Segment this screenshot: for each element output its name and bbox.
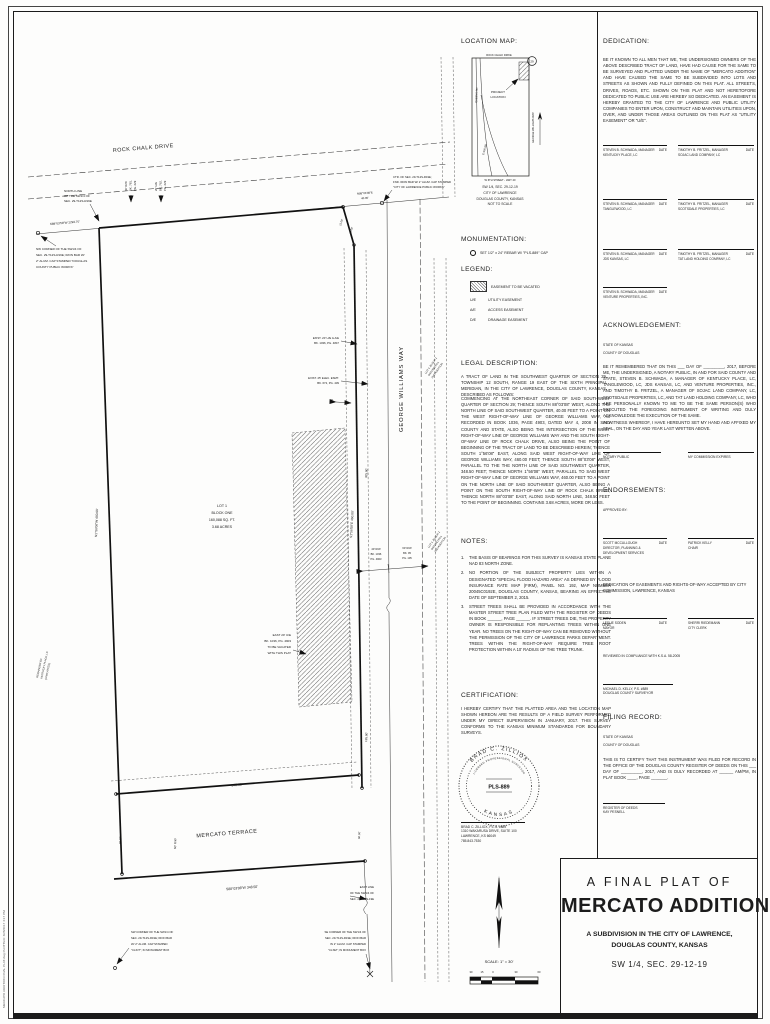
svg-text:15: 15 (481, 970, 484, 974)
rcd-ue-callout: 20' U/E BK. 762, PG. 629 (154, 180, 167, 191)
street-label-mercato-terrace: MERCATO TERRACE (196, 829, 257, 840)
endorsements-title: ENDORSEMENTS: (603, 487, 666, 494)
monumentation-title: MONUMENTATION: (461, 236, 526, 243)
locmap-project-2: LOCATION (490, 95, 505, 99)
hatch-swatch-icon (470, 281, 487, 292)
ack-state: STATE OF KANSAS (603, 343, 633, 348)
locmap-project-1: PROJECT (491, 90, 505, 94)
svg-text:TO BE VACATED: TO BE VACATED (267, 645, 291, 649)
certification-body: I HEREBY CERTIFY THAT THE PLATTED AREA A… (461, 706, 611, 737)
filing-state: STATE OF KANSAS (603, 735, 633, 740)
svg-text:BK. 1036, PG. 4903: BK. 1036, PG. 4903 (264, 639, 291, 643)
seal-state: KANSAS (483, 808, 514, 817)
svg-text:"CLINT"; IN MONUMENT BOX: "CLINT"; IN MONUMENT BOX (131, 948, 169, 952)
svg-text:COUNTY PUBLIC WORKS": COUNTY PUBLIC WORKS" (36, 265, 74, 269)
clip-dim-1: 15.00' (338, 218, 344, 226)
filing-body: THIS IS TO CERTIFY THAT THIS INSTRUMENT … (603, 757, 756, 781)
svg-text:"CITY OF LAWRENCE PUBLIC WORKS: "CITY OF LAWRENCE PUBLIC WORKS" (393, 185, 445, 189)
vacated-easement-hatch (292, 428, 352, 707)
note-item-3: 3. STREET TREES SHALL BE PROVIDED IN ACC… (461, 604, 611, 653)
svg-text:EXIST. 20' U/E & A/E: EXIST. 20' U/E & A/E (313, 336, 339, 340)
legal-description-p2: COMMENCING AT THE NORTHEAST CORNER OF SA… (461, 396, 610, 506)
legend-title: LEGEND: (461, 266, 493, 273)
svg-text:SEC. 29-T12S-19E: SEC. 29-T12S-19E (350, 897, 374, 901)
svg-text:"CLSM"; IN MONUMENT BOX: "CLSM"; IN MONUMENT BOX (328, 948, 366, 952)
seal-title: LICENSED PROFESSIONAL SURVEYOR (472, 756, 526, 775)
svg-text:SEC. 29-T12S-R19E; IRON BAR W/: SEC. 29-T12S-R19E; IRON BAR W/ (36, 253, 85, 257)
svg-text:KANSAS: KANSAS (483, 808, 514, 817)
north-line-bearing: S88°03'58"W 2293.70' (50, 219, 81, 226)
svg-text:OF THE SW1/4 OF: OF THE SW1/4 OF (64, 194, 90, 198)
signature-tat-land: TIMOTHY B. FRITZEL, MANAGERDATE TAT LAND… (678, 249, 754, 261)
signature-venture-properties: STEVEN B. SCHWADA, MANAGERDATE VENTURE P… (603, 287, 667, 299)
east-line-dimension: S1°56'08"E 460.00' (349, 510, 355, 538)
register-of-deeds-block: REGISTER OF DEEDS KAY PESNELL (603, 803, 665, 815)
svg-text:SEC. 29-T12S-R19E; IRON BAR: SEC. 29-T12S-R19E; IRON BAR (325, 936, 366, 940)
exist-elec-callout: EXIST. 25' ELEC. ESMT. BK. 672, PG. 439 (308, 376, 368, 385)
endorsement-mayor: LESLIE SODENDATE MAYOR (603, 618, 667, 630)
svg-text:0: 0 (492, 970, 494, 974)
notary-block: NOTARY PUBLIC (603, 452, 661, 459)
svg-text:WITH THIS PLAT: WITH THIS PLAT (268, 651, 292, 655)
svg-text:EAST LINE: EAST LINE (360, 885, 374, 889)
title-prefix: A FINAL PLAT OF (561, 875, 758, 889)
street-label-george-williams: GEORGE WILLIAMS WAY (399, 346, 405, 432)
rebar-monument-icon (470, 250, 476, 256)
rock-chalk-drive-lines (28, 142, 450, 199)
notes-list: 1. THE BASIS OF BEARINGS FOR THIS SURVEY… (461, 555, 611, 656)
street-north-dim: 348.50' (231, 783, 243, 788)
endorsement-chair: PATRICK KELLYDATE CHAIR (688, 538, 754, 550)
svg-text:EXIST. 25' ELEC. ESMT.: EXIST. 25' ELEC. ESMT. (308, 376, 339, 380)
svg-text:BK. 1036, PG. 4847: BK. 1036, PG. 4847 (314, 341, 339, 345)
svg-text:W/ 2" ALUM. CAP STAMPED: W/ 2" ALUM. CAP STAMPED (131, 942, 167, 946)
seal-number: PLS-889 (488, 785, 509, 791)
svg-text:PG. 629: PG. 629 (133, 180, 137, 191)
notes-title: NOTES: (461, 538, 488, 545)
ack-witness: IN WITNESS WHEREOF, I HAVE HEREUNTO SET … (603, 420, 756, 432)
lot-label: LOT 1 BLOCK ONE 160,088 SQ. FT. 3.68 ACR… (209, 504, 235, 529)
svg-text:EAST 20' U/E: EAST 20' U/E (273, 633, 291, 637)
signature-jds-kansas: STEVEN B. SCHWADA, MANAGERDATE JDS KANSA… (603, 249, 667, 261)
endorsement-planning-director: SCOTT MCCULLOUGHDATE DIRECTOR, PLANNING … (603, 538, 667, 555)
section-reference: SW 1/4, SEC. 29-12-19 (561, 960, 758, 969)
location-map-drawing: ROCK CHALK DRIVE 29 PROJECT LOCATION QUE… (472, 53, 542, 182)
ksa-note: REVIEWED IN COMPLIANCE WITH K.S.A. 58-20… (603, 654, 680, 659)
mercato-terrace-lines (111, 762, 366, 879)
scale-bar: SCALE: 1" = 30' 30 15 0 30 60 (470, 959, 541, 984)
exist-ue-callout: EXIST. 20' U/E & A/E BK. 1036, PG. 4847 (313, 336, 357, 345)
commission-accept-note: DEDICATION OF EASEMENTS AND RIGHTS-OF-WA… (603, 582, 749, 594)
svg-text:PG. 105: PG. 105 (402, 556, 412, 560)
locmap-street-e900: E 900 RD (481, 143, 488, 155)
street-rw-label: 60' R/W (173, 838, 177, 849)
svg-text:LICENSED PROFESSIONAL SURVEYOR: LICENSED PROFESSIONAL SURVEYOR (472, 756, 526, 775)
svg-text:BK. 781,: BK. 781, (128, 180, 132, 191)
dedication-body: BE IT KNOWN TO ALL MEN THAT WE, THE UNDE… (603, 57, 756, 124)
subdivision-note: A SUBDIVISION IN THE CITY OF LAWRENCE, D… (561, 930, 758, 952)
rcd-rw-callout: 60' R/W BK. 781, PG. 629 (124, 180, 137, 191)
legend-item-ae: A/E ACCESS EASEMENT (470, 308, 600, 312)
west-line-dimension: N1°56'08"W 460.00' (94, 508, 99, 537)
svg-text:BK. 1036: BK. 1036 (371, 552, 382, 556)
note-item-2: 2. NO PORTION OF THE SUBJECT PROPERTY LI… (461, 570, 611, 601)
street-width-east: 60.00' (357, 831, 361, 839)
filing-county: COUNTY OF DOUGLAS (603, 743, 639, 748)
note-item-1: 1. THE BASIS OF BEARINGS FOR THIS SURVEY… (461, 555, 611, 567)
svg-text:IN 2" ALUM. CAP STAMPED: IN 2" ALUM. CAP STAMPED (330, 942, 366, 946)
center-of-section-note: CTR. OF SEC. 29-T12S-R19E; FND. IRON BAR… (380, 175, 451, 205)
east-quarter-line (364, 861, 373, 977)
filing-record-title: FILING RECORD: (603, 714, 662, 721)
locmap-north-arrow-icon (538, 112, 542, 145)
nw-corner-note: NW CORNER OF THE SW1/4 OF SEC. 29-T12S-R… (36, 231, 87, 269)
legend-item-de: D/E DRAINAGE EASEMENT (470, 318, 600, 322)
endorsement-city-clerk: SHERRI RIEDEMANNDATE CITY CLERK (688, 618, 754, 630)
scale-label: SCALE: 1" = 30' (485, 959, 514, 964)
svg-text:LOT 1: LOT 1 (217, 504, 227, 508)
svg-text:SEC. 29-T12S-R19E; IRON BAR: SEC. 29-T12S-R19E; IRON BAR (131, 936, 172, 940)
svg-text:2" ALUM. CAP STAMPED "DOUGLAS: 2" ALUM. CAP STAMPED "DOUGLAS (36, 259, 87, 263)
east-segment-1: 325.00' (364, 468, 369, 478)
svg-text:PG. 629: PG. 629 (163, 180, 167, 191)
acknowledgement-title: ACKNOWLEDGEMENT: (603, 322, 681, 329)
signature-sojac: TIMOTHY B. FRITZEL, MANAGERDATE SOJAC LA… (678, 145, 754, 157)
svg-text:SEC. 29-T12S-R19E: SEC. 29-T12S-R19E (64, 199, 92, 203)
legend-items: EASEMENT TO BE VACATED U/E UTILITY EASEM… (470, 281, 600, 328)
approved-by-label: APPROVED BY: (603, 508, 627, 513)
certification-title: CERTIFICATION: (461, 692, 518, 699)
dedication-title: DEDICATION: (603, 38, 649, 45)
adjacent-lot-label-south: LOT 1, BLOCK 1 OXFORD HILL 2ND ADDITION (427, 530, 448, 553)
svg-text:60: 60 (538, 970, 541, 974)
svg-text:30: 30 (515, 970, 518, 974)
legend-item-ue: U/E UTILITY EASEMENT (470, 298, 600, 302)
lot-north-boundary (99, 207, 343, 228)
street-width-west: 60.00' (118, 836, 122, 844)
svg-text:SW CORNER OF THE SW1/4 OF: SW CORNER OF THE SW1/4 OF (131, 930, 174, 934)
svg-text:BLOCK ONE: BLOCK ONE (212, 511, 234, 515)
surveyor-block: BRAD C. ZILLIOX, P.L.S. #889 1310 WAKARU… (461, 822, 551, 844)
legal-description-title: LEGAL DESCRIPTION: (461, 360, 538, 367)
street-label-rock-chalk: ROCK CHALK DRIVE (113, 143, 174, 154)
signature-scotsdale: TIMOTHY B. FRITZEL, MANAGERDATE SCOTSDAL… (678, 199, 754, 211)
svg-text:NORTH LINE: NORTH LINE (64, 189, 82, 193)
south-boundary-dimension: S88°03'08"W 348.50' (226, 885, 259, 892)
surveyor-phone: 785.843.7530 (461, 839, 551, 844)
locmap-road-bottom: W 6TH STREET - HWY 40 (485, 178, 516, 182)
locmap-street-gww: GEORGE WILLIAMS WAY (531, 112, 535, 143)
east-line-note: EAST LINE OF THE SW1/4 OF SEC. 29-T12S-1… (350, 885, 374, 901)
se-corner-note: SE CORNER OF THE SW1/4 OF SEC. 29-T12S-R… (325, 930, 370, 969)
commission-block: MY COMMISSION EXPIRES (688, 452, 754, 459)
remainder-note: REMAINDER OF KENTUCKY PLACE, LC (UNPLATT… (35, 650, 53, 680)
svg-text:OF THE SW1/4 OF: OF THE SW1/4 OF (350, 891, 374, 895)
signature-tanglewood: STEVEN B. SCHWADA, MANAGERDATE TANGLEWOO… (603, 199, 667, 211)
legend-item-vacated: EASEMENT TO BE VACATED (470, 281, 600, 292)
svg-text:PG. 4903: PG. 4903 (371, 557, 383, 561)
plat-sheet: MERCATO ADDITION FINAL PLAT.dwg PLOTTED:… (0, 0, 770, 1024)
svg-text:10': 10' (329, 398, 333, 402)
sw-corner-note: SW CORNER OF THE SW1/4 OF SEC. 29-T12S-R… (114, 930, 174, 970)
surveyor-seal: BRAD C. ZILLIOX LICENSED PROFESSIONAL SU… (459, 746, 539, 826)
pob-tie-bearing: N88°03'08"E (357, 190, 373, 195)
legal-description-p1: A TRACT OF LAND IN THE SOUTHWEST QUARTER… (461, 374, 607, 398)
svg-text:60' R/W: 60' R/W (124, 181, 128, 191)
east-segment-2: 135.00' (364, 732, 369, 742)
ack-body: BE IT REMEMBERED THAT ON THIS ___ DAY OF… (603, 364, 756, 419)
monumentation-item: SET 1/2" x 24" REBAR W/ "PLS-889" CAP (470, 250, 600, 256)
svg-text:60' R/W: 60' R/W (402, 546, 412, 550)
svg-text:160,088 SQ. FT.: 160,088 SQ. FT. (209, 518, 235, 522)
ack-county: COUNTY OF DOUGLAS (603, 351, 639, 356)
plat-name: MERCATO ADDITION (561, 895, 758, 918)
svg-text:BK. 762,: BK. 762, (158, 180, 162, 191)
county-surveyor-block: MICHAEL D. KELLY, P.S. #889 DOUGLAS COUN… (603, 684, 673, 696)
adjacent-lot-label-north: LOT 4, BLOCK 1 OXFORD HILL 2ND ADDITION (424, 356, 445, 379)
locmap-section-badge: 29 (530, 59, 534, 63)
locmap-street-queens: QUEENS RD (474, 87, 479, 103)
north-arrow-icon (496, 876, 503, 948)
svg-text:40' R/W: 40' R/W (371, 547, 381, 551)
svg-text:3.68 ACRES: 3.68 ACRES (212, 525, 233, 529)
svg-text:30: 30 (470, 970, 473, 974)
title-block: A FINAL PLAT OF MERCATO ADDITION A SUBDI… (560, 858, 758, 1013)
location-map-caption: SW 1/4, SEC. 29-12-19 CITY OF LAWRENCE D… (455, 185, 545, 208)
svg-text:BK. 672, PG. 439: BK. 672, PG. 439 (317, 381, 339, 385)
ten-foot-dim: 10' (329, 398, 351, 403)
svg-text:CTR. OF SEC. 29-T12S-R19E;: CTR. OF SEC. 29-T12S-R19E; (393, 175, 432, 179)
svg-text:FND. IRON BAR W/ 2" ALUM. CAP: FND. IRON BAR W/ 2" ALUM. CAP STAMPED (393, 180, 451, 184)
svg-text:NW CORNER OF THE SW1/4 OF: NW CORNER OF THE SW1/4 OF (36, 247, 82, 251)
pob-tie-distance: 40.00' (361, 196, 369, 201)
signature-kentucky-place: STEVEN B. SCHWADA, MANAGERDATE KENTUCKY … (603, 145, 667, 157)
locmap-road-top: ROCK CHALK DRIVE (486, 53, 512, 57)
location-map-title: LOCATION MAP: (461, 38, 517, 45)
svg-text:SE CORNER OF THE SW1/4 OF: SE CORNER OF THE SW1/4 OF (325, 930, 367, 934)
gww-rw-dims: 40' R/W BK. 1036 PG. 4903 60' R/W BK. 95… (363, 546, 428, 573)
svg-text:20' U/E: 20' U/E (154, 182, 158, 191)
svg-text:BK. 95: BK. 95 (403, 551, 411, 555)
